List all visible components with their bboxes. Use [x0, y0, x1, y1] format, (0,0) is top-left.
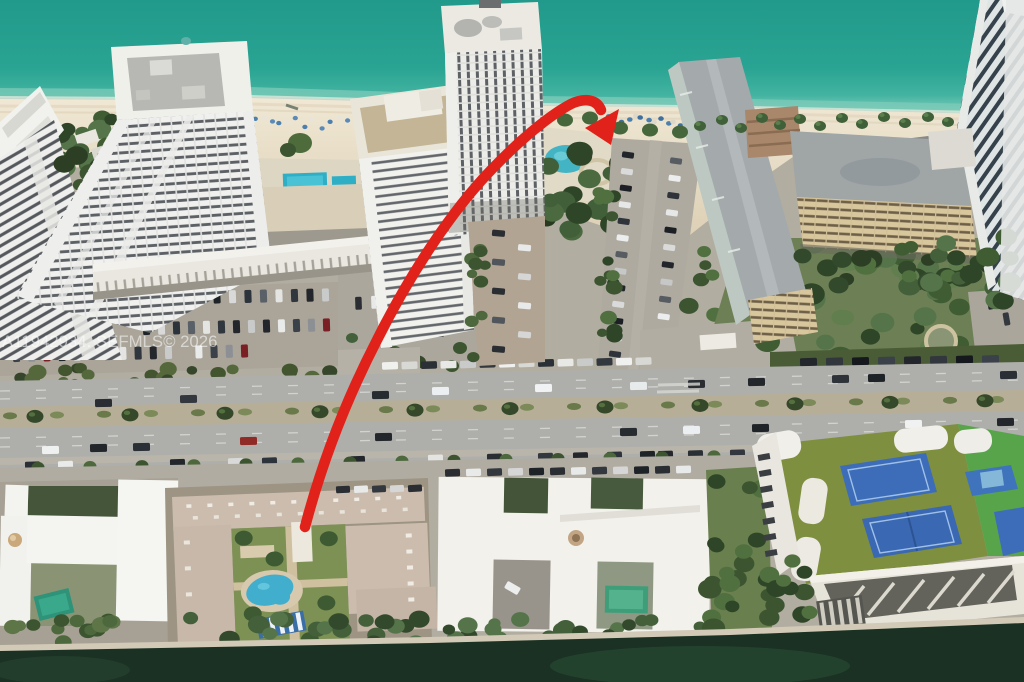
svg-text:A11942934. SEFMLS© 2026: A11942934. SEFMLS© 2026 [2, 332, 217, 351]
